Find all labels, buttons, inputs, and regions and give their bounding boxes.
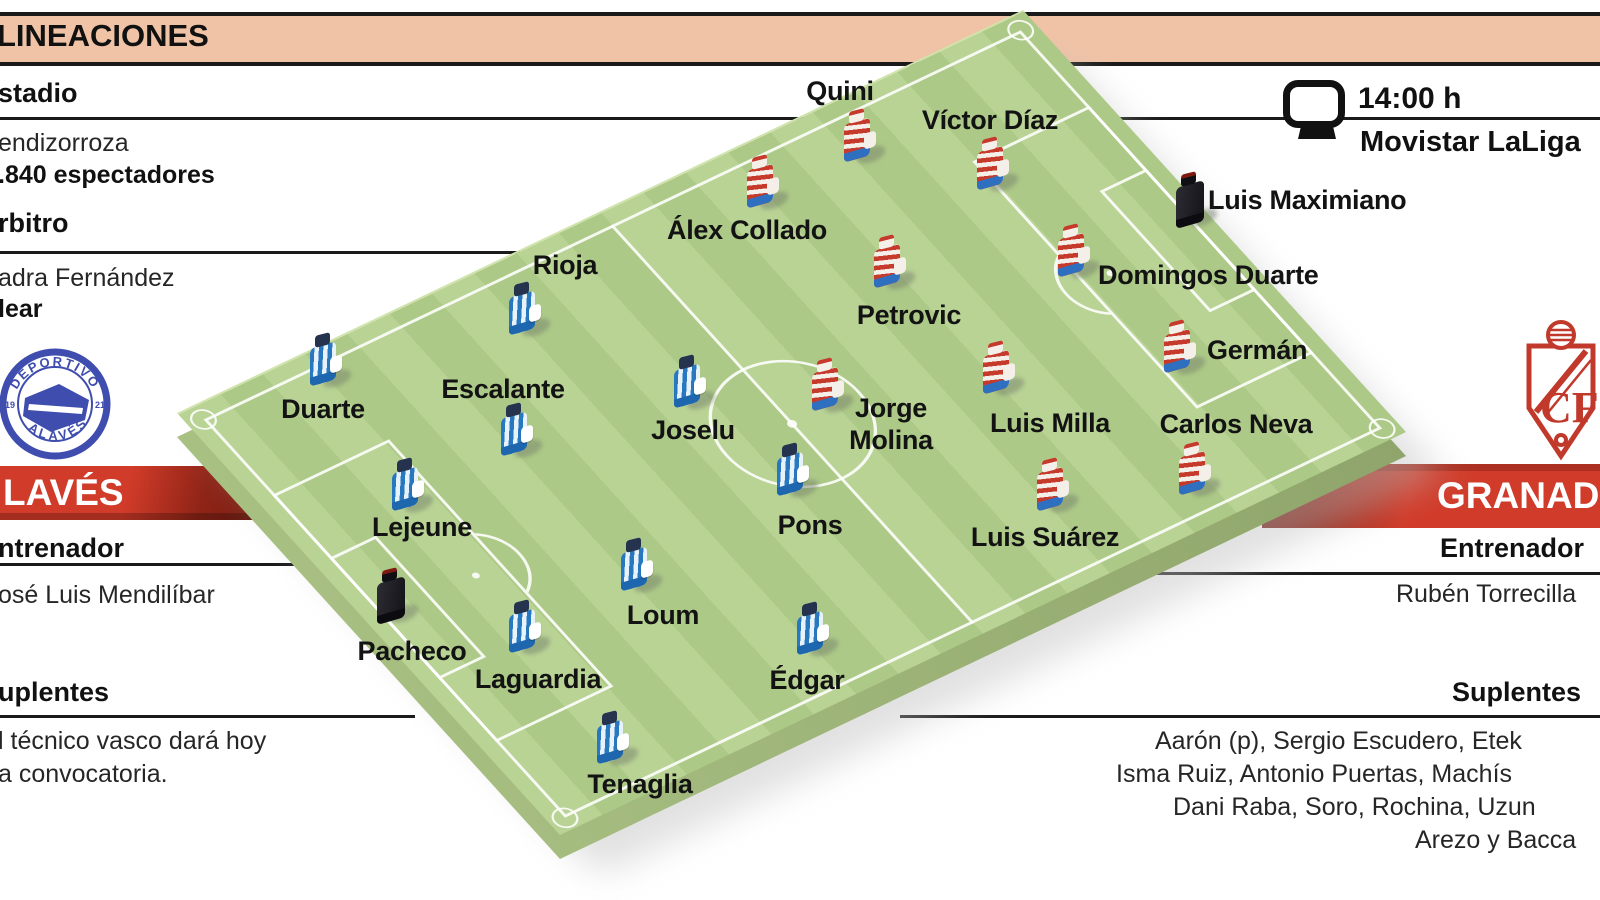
player-label-pacheco: Pacheco (358, 635, 467, 667)
granada-crest-monogram: CF (1540, 383, 1599, 432)
arbitro-region: lear (0, 295, 42, 324)
entrenador-left-name: osé Luis Mendilíbar (0, 581, 215, 610)
divider-arbitro (0, 251, 520, 254)
player-label-rioja: Rioja (533, 249, 598, 281)
player-label-quini: Quini (806, 75, 874, 107)
tv-channel: Movistar LaLiga (1360, 126, 1581, 159)
entrenador-right-name: Rubén Torrecilla (1396, 580, 1576, 609)
player-label-tenaglia: Tenaglia (587, 768, 692, 800)
player-figure-pons (773, 443, 813, 501)
divider-suplentes-left (0, 715, 415, 718)
suplentes-right-line: Isma Ruiz, Antonio Puertas, Machís (1116, 760, 1512, 789)
alaves-crest-icon: DEPORTIVO ALAVÉS 19 21 (0, 346, 113, 462)
tv-icon (1283, 80, 1345, 128)
suplentes-left-line: a convocatoria. (0, 760, 168, 789)
alaves-crest-year-right: 21 (95, 400, 105, 410)
player-label-joselu: Joselu (651, 414, 735, 446)
player-label-german: Germán (1207, 334, 1307, 366)
suplentes-right-heading: Suplentes (1452, 677, 1581, 708)
player-figure-quini (840, 109, 880, 167)
player-figure-domingos-duarte (1054, 224, 1094, 282)
player-figure-luis-milla (979, 341, 1019, 399)
suplentes-right-line: Aarón (p), Sergio Escudero, Etek (1155, 727, 1522, 756)
player-label-lejeune: Lejeune (372, 511, 472, 543)
granada-crest-icon: CF (1522, 318, 1600, 464)
estadio-heading: stadio (0, 78, 78, 109)
entrenador-right-heading: Entrenador (1440, 533, 1584, 564)
player-label-jorge-molina: JorgeMolina (849, 392, 933, 456)
player-figure-lejeune (388, 458, 428, 516)
player-label-petrovic: Petrovic (857, 299, 961, 331)
player-label-pons: Pons (778, 509, 843, 541)
player-figure-shirt (377, 576, 405, 625)
player-figure-german (1160, 320, 1200, 378)
player-figure-duarte (306, 333, 346, 391)
player-figure-luis-maximiano (1172, 172, 1212, 230)
player-label-loum: Loum (627, 599, 699, 631)
player-figure-escalante (497, 403, 537, 461)
header-band (0, 12, 1600, 66)
player-figure-shirt (1176, 180, 1204, 229)
player-figure-laguardia (505, 600, 545, 658)
kickoff-time: 14:00 h (1358, 82, 1461, 116)
player-label-luis-maximiano: Luis Maximiano (1208, 184, 1406, 216)
player-label-luis-suarez: Luis Suárez (971, 521, 1119, 553)
player-figure-loum (617, 538, 657, 596)
player-figure-luis-suarez (1033, 458, 1073, 516)
player-figure-carlos-neva (1175, 442, 1215, 500)
suplentes-right-line: Arezo y Bacca (1415, 826, 1576, 855)
player-label-carlos-neva: Carlos Neva (1160, 408, 1313, 440)
player-label-luis-milla: Luis Milla (990, 407, 1110, 439)
player-label-edgar: Édgar (769, 664, 844, 696)
entrenador-left-heading: ntrenador (0, 533, 124, 564)
arbitro-heading: rbitro (0, 208, 69, 239)
page-title: LINEACIONES (0, 18, 209, 54)
player-label-victor-diaz: Víctor Díaz (922, 104, 1058, 136)
suplentes-right-line: Dani Raba, Soro, Rochina, Uzun (1173, 793, 1536, 822)
player-figure-petrovic (870, 235, 910, 293)
suplentes-left-heading: uplentes (0, 677, 109, 708)
player-figure-edgar (793, 602, 833, 660)
arbitro-name: adra Fernández (0, 264, 175, 293)
player-figure-joselu (670, 355, 710, 413)
player-label-laguardia: Laguardia (475, 663, 601, 695)
lineups-infographic: { "header": { "title": "LINEACIONES" }, … (0, 0, 1600, 900)
player-label-escalante: Escalante (441, 373, 564, 405)
player-label-duarte: Duarte (281, 393, 365, 425)
player-label-domingos-duarte: Domingos Duarte (1098, 259, 1319, 291)
divider-suplentes-right (900, 715, 1600, 718)
alaves-crest-year-left: 19 (5, 400, 15, 410)
player-figure-victor-diaz (973, 137, 1013, 195)
player-figure-rioja (505, 282, 545, 340)
player-figure-pacheco (373, 568, 413, 626)
suplentes-left-line: l técnico vasco dará hoy (0, 727, 266, 756)
player-figure-tenaglia (593, 711, 633, 769)
estadio-name: endizorroza (0, 129, 129, 158)
team-name-granada: GRANADA (1437, 475, 1600, 517)
team-name-alaves: LAVÉS (3, 472, 124, 514)
player-figure-alex-collado (743, 155, 783, 213)
estadio-capacity: .840 espectadores (0, 161, 215, 190)
player-label-alex-collado: Álex Collado (667, 214, 827, 246)
player-figure-jorge-molina (808, 358, 848, 416)
